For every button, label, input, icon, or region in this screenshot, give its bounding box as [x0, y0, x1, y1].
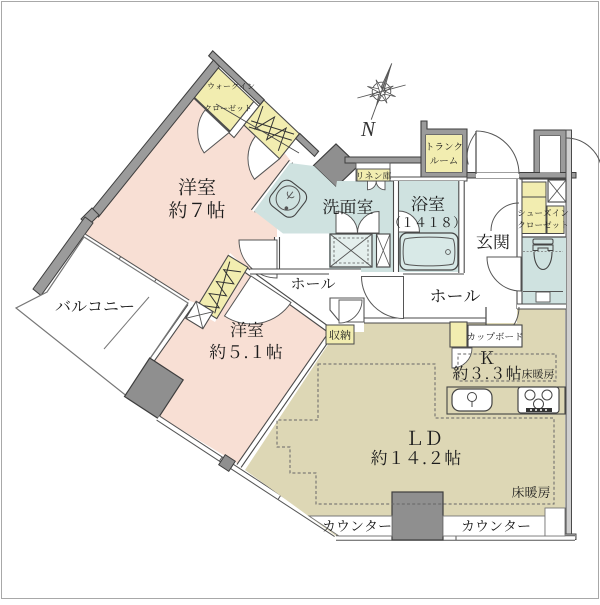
svg-text:N: N — [360, 117, 376, 141]
